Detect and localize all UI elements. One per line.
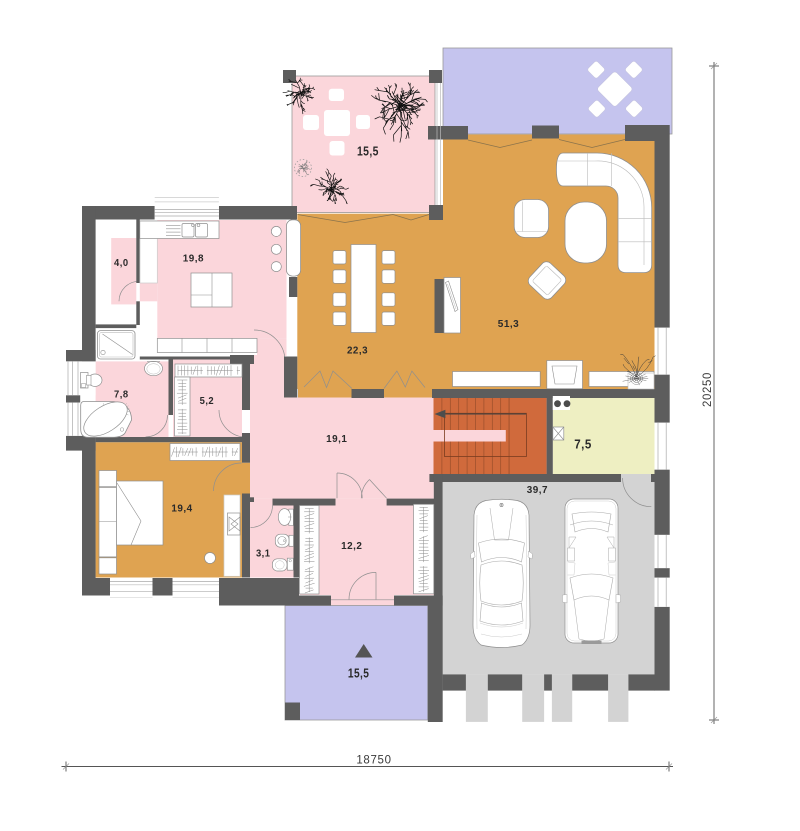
svg-text:19,8: 19,8 xyxy=(183,254,204,265)
svg-text:15,5: 15,5 xyxy=(348,667,369,681)
svg-text:19,1: 19,1 xyxy=(326,434,347,445)
svg-text:20250: 20250 xyxy=(701,372,714,407)
svg-text:5,2: 5,2 xyxy=(200,396,215,407)
svg-text:12,2: 12,2 xyxy=(341,541,362,552)
svg-text:7,5: 7,5 xyxy=(574,438,592,452)
svg-text:19,4: 19,4 xyxy=(171,504,192,515)
svg-text:39,7: 39,7 xyxy=(527,485,548,496)
svg-text:18750: 18750 xyxy=(356,753,391,766)
svg-text:4,0: 4,0 xyxy=(114,258,129,269)
svg-text:7,8: 7,8 xyxy=(114,389,129,400)
svg-text:51,3: 51,3 xyxy=(498,319,520,330)
svg-text:15,5: 15,5 xyxy=(357,143,379,158)
svg-text:3,1: 3,1 xyxy=(256,549,271,560)
svg-text:22,3: 22,3 xyxy=(347,346,368,357)
